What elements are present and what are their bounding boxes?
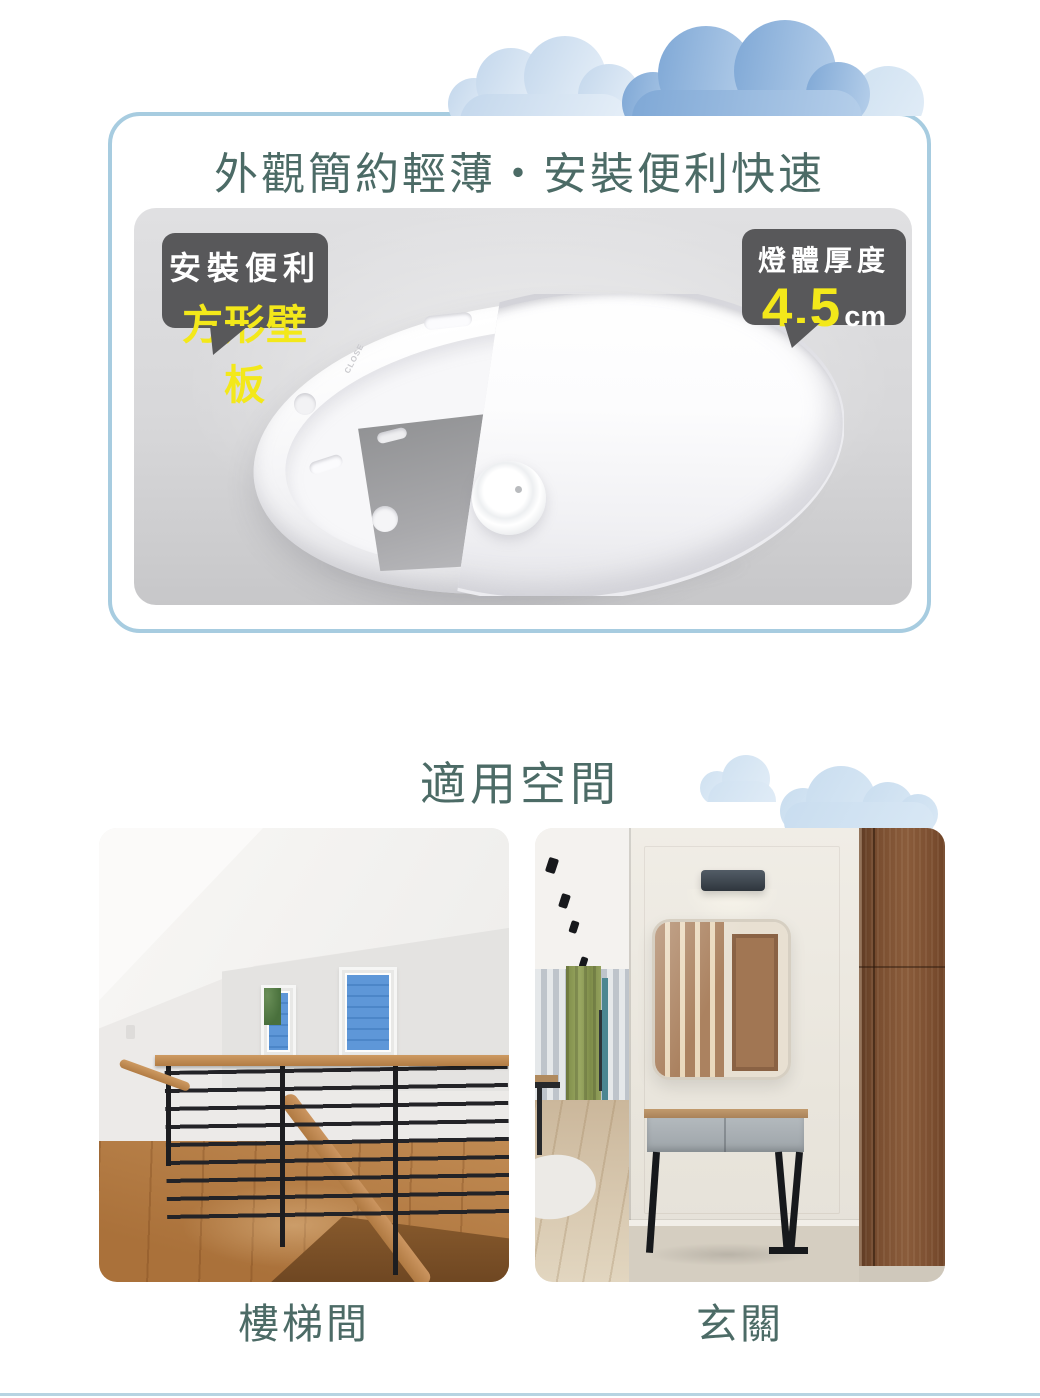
railing-bars <box>164 1065 509 1232</box>
plate-screw-hole <box>372 506 398 532</box>
stairwell-window <box>339 967 397 1058</box>
wall-corner-shadow <box>629 828 631 1282</box>
thickness-badge-label: 燈體厚度 <box>742 239 906 279</box>
caption-stairwell: 樓梯間 <box>99 1290 509 1350</box>
drawer-divider <box>724 1118 726 1152</box>
feature-title: 外觀簡約輕薄・安裝便利快速 <box>112 138 927 202</box>
railing-post <box>393 1061 398 1274</box>
section-divider-line <box>0 1393 1040 1396</box>
console-drawers <box>647 1118 804 1152</box>
console-leg-bar <box>769 1247 808 1254</box>
railing-wood-cap <box>155 1055 509 1065</box>
railing-post <box>280 1061 285 1247</box>
product-image: CLOSE CLOSE 安裝便利 方形壁板 燈體厚度 4.5cm <box>134 208 912 605</box>
caption-entryway: 玄關 <box>535 1290 945 1350</box>
page: 外觀簡約輕薄・安裝便利快速 CLOSE CLOSE 安裝便利 方形壁板 <box>0 0 1040 1398</box>
wall-lamp <box>701 870 765 891</box>
wardrobe-seam <box>873 828 875 1266</box>
thickness-badge-value-row: 4.5cm <box>742 275 906 339</box>
cloud-dark-icon <box>622 20 874 116</box>
cloud-large-icon <box>778 766 938 830</box>
floor-sliver <box>859 1266 945 1282</box>
install-badge-line2: 方形壁板 <box>162 291 328 411</box>
teal-accent <box>602 978 608 1101</box>
thickness-badge: 燈體厚度 4.5cm <box>742 229 906 325</box>
walnut-wardrobe <box>859 828 945 1266</box>
wardrobe-seam <box>859 966 945 968</box>
install-badge: 安裝便利 方形壁板 <box>162 233 328 328</box>
cloud-small-icon <box>700 755 784 802</box>
photo-entryway <box>535 828 945 1282</box>
cloud-light-icon <box>440 34 645 116</box>
install-badge-line1: 安裝便利 <box>162 243 328 289</box>
window-foliage <box>264 988 282 1025</box>
console-table-top <box>644 1109 808 1119</box>
photo-stairwell <box>99 828 509 1282</box>
stairwell-window <box>261 985 296 1058</box>
feature-card: 外觀簡約輕薄・安裝便利快速 CLOSE CLOSE 安裝便利 方形壁板 <box>108 112 931 633</box>
lamp-sensor-center <box>472 461 546 535</box>
green-curtain <box>566 966 601 1116</box>
thickness-unit: cm <box>844 301 886 333</box>
window-glass <box>347 975 389 1050</box>
entry-mirror <box>652 919 791 1081</box>
mirror-sheen <box>655 922 788 1078</box>
wardrobe-edge-highlight <box>859 828 862 1266</box>
light-switch <box>126 1025 135 1039</box>
side-desk-leg <box>537 1082 542 1155</box>
side-desk-frame <box>535 1082 560 1087</box>
